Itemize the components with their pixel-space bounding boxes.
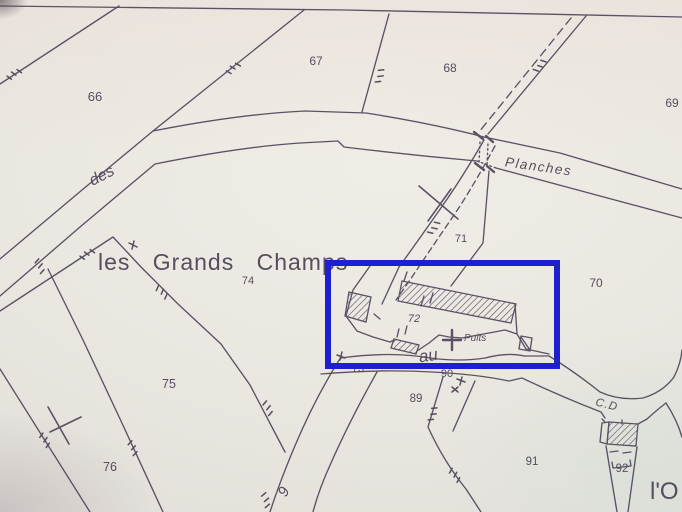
- track-dashed: [396, 146, 495, 300]
- parcel-76-label: 76: [103, 460, 117, 474]
- parcel-boundary: [0, 6, 119, 84]
- parcel-70-label: 70: [589, 276, 603, 290]
- parcel-75-label: 75: [162, 377, 176, 391]
- au-road-north-edge: [341, 350, 682, 399]
- building-west: [345, 292, 371, 322]
- parcel-boundary-67-68: [362, 14, 389, 112]
- parcel-90-label: 90: [441, 368, 453, 380]
- parcel-69-label: 69: [665, 96, 679, 110]
- footpath-solid: [488, 16, 586, 134]
- track-solid: [382, 140, 484, 304]
- au-road-south-edge: [321, 371, 605, 418]
- road-south-edge-east: [496, 168, 682, 218]
- parcel-92-west: [606, 446, 617, 512]
- parcel-boundary-89-90: [428, 377, 481, 512]
- boundary-tick-marks: [6, 59, 546, 508]
- well-label: Puits: [464, 333, 486, 344]
- survey-cross: [48, 407, 81, 444]
- well-cross-symbol: [443, 330, 461, 350]
- building-small: [391, 339, 419, 354]
- map-canvas: 66 67 68 69 70 71 72 73 74 75 76 89 90 9…: [0, 0, 682, 512]
- sw-road-east-edge: [313, 372, 377, 512]
- footpath-dashed: [479, 18, 571, 132]
- cadastral-map-photo: 66 67 68 69 70 71 72 73 74 75 76 89 90 9…: [0, 0, 682, 512]
- building-92: [600, 419, 638, 446]
- map-sheet-border: [0, 6, 682, 17]
- parcel-74-label: 74: [242, 275, 254, 287]
- lieu-dit-partial-label: l'O: [650, 478, 679, 505]
- parcel-92-label: 92: [616, 463, 629, 475]
- parcel-68-label: 68: [443, 61, 457, 75]
- parcel-89-label: 89: [410, 393, 423, 405]
- parcel-72-label: 72: [408, 313, 420, 325]
- lieu-dit-label: les Grands Champs: [98, 249, 348, 275]
- parcel-67-label: 67: [309, 54, 323, 68]
- parcel-91-label: 91: [526, 456, 539, 468]
- parcel-boundary-75-76: [48, 269, 163, 512]
- road-number-label: 9: [275, 484, 294, 500]
- parcel-92-east: [628, 447, 637, 512]
- cd-branch-edge: [666, 403, 682, 437]
- parcel-66-label: 66: [88, 89, 102, 104]
- road-name-planches: Planches: [504, 154, 573, 178]
- road-name-des: des: [87, 162, 118, 189]
- parcel-boundary-70-71: [451, 171, 489, 286]
- parcel-71-label: 71: [455, 233, 467, 245]
- junction-line: [638, 403, 666, 424]
